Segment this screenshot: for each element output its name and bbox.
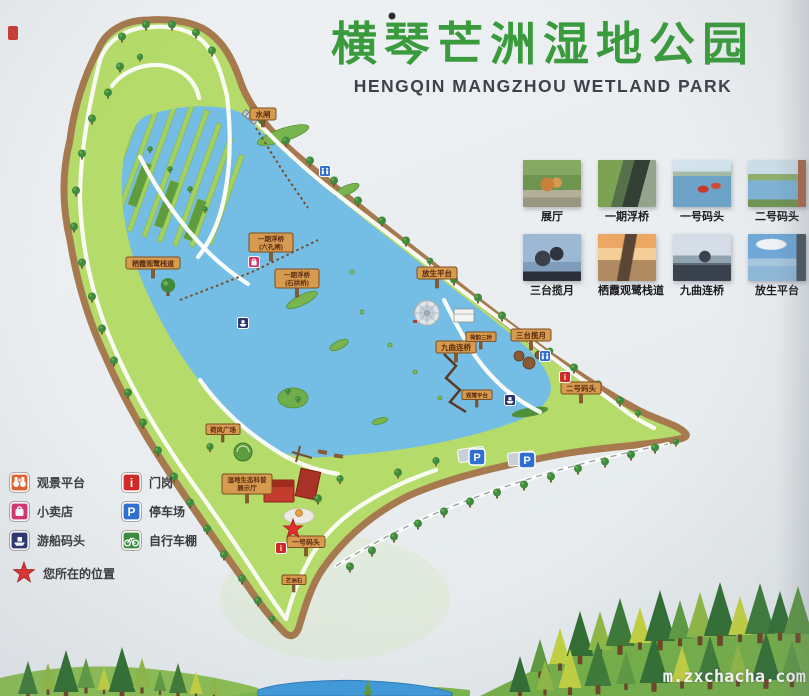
svg-text:荷韵三桥: 荷韵三桥 bbox=[469, 334, 493, 342]
svg-text:i: i bbox=[130, 476, 133, 490]
legend-label: 小卖店 bbox=[37, 503, 73, 520]
info-icon: i bbox=[122, 473, 141, 492]
svg-text:九曲连桥: 九曲连桥 bbox=[440, 342, 471, 352]
photo-panel: 展厅 一期浮桥 一号码头 二号码头 三台揽月 栖霞观鹭栈道 九曲连桥 bbox=[510, 160, 808, 308]
svg-text:P: P bbox=[523, 455, 530, 467]
legend-label: 门岗 bbox=[149, 474, 173, 491]
svg-text:荷风广场: 荷风广场 bbox=[209, 425, 237, 434]
photo-caption: 九曲连桥 bbox=[673, 285, 731, 297]
page-title: 横琴芒洲湿地公园 bbox=[312, 16, 774, 74]
shop-bag-icon bbox=[10, 502, 29, 521]
shop-icon bbox=[249, 257, 260, 268]
binoculars-icon bbox=[10, 473, 29, 492]
svg-text:芒洲石: 芒洲石 bbox=[286, 577, 303, 585]
photo-thumbnail bbox=[673, 234, 731, 281]
photo-thumbnail bbox=[523, 160, 581, 207]
svg-text:水闸: 水闸 bbox=[256, 109, 271, 119]
watermark: m.zxchacha.com bbox=[663, 667, 806, 687]
restroom-icon bbox=[320, 166, 331, 177]
legend-boat-pier: 游船码头 bbox=[10, 526, 122, 555]
park-map: 水闸 栖霞观鹭栈道 一期浮桥(六孔闸) 一期浮桥(石拱桥) 放生平台 九曲连桥 … bbox=[0, 0, 809, 696]
parking-icon: P bbox=[122, 502, 141, 521]
legend-label: 自行车棚 bbox=[149, 532, 197, 549]
bicycle-icon bbox=[122, 531, 141, 550]
parking-icon: P bbox=[519, 452, 535, 468]
svg-text:观鹭平台: 观鹭平台 bbox=[466, 392, 489, 400]
map-legend: 观景平台 小卖店 游船码头 i 门岗 P 停车场 bbox=[10, 468, 246, 585]
photo-exhibition-hall: 展厅 bbox=[523, 160, 581, 223]
svg-text:一号码头: 一号码头 bbox=[292, 538, 320, 547]
svg-text:i: i bbox=[280, 544, 282, 553]
pond bbox=[258, 680, 452, 696]
photo-caption: 一号码头 bbox=[673, 211, 731, 223]
gate-info-icon: i bbox=[276, 543, 287, 554]
restroom-icon bbox=[540, 351, 551, 362]
white-building bbox=[454, 309, 474, 322]
boat-pier-icon bbox=[238, 318, 249, 329]
photo-jiuqu-bridge: 九曲连桥 bbox=[673, 234, 731, 297]
photo-caption: 二号码头 bbox=[748, 211, 806, 223]
svg-text:(石拱桥): (石拱桥) bbox=[285, 278, 309, 287]
svg-text:P: P bbox=[473, 452, 480, 464]
lawn-circle bbox=[234, 443, 252, 461]
photo-phase1-bridge: 一期浮桥 bbox=[598, 160, 656, 223]
photo-row: 展厅 一期浮桥 一号码头 二号码头 bbox=[510, 160, 808, 223]
svg-text:栖霞观鹭栈道: 栖霞观鹭栈道 bbox=[132, 259, 174, 268]
legend-viewing-platform: 观景平台 bbox=[10, 468, 122, 497]
photo-pier-1: 一号码头 bbox=[673, 160, 731, 223]
photo-thumbnail bbox=[523, 234, 581, 281]
legend-bicycle-shed: 自行车棚 bbox=[122, 526, 240, 555]
star-icon bbox=[12, 561, 36, 585]
svg-text:i: i bbox=[564, 373, 566, 382]
photo-thumbnail bbox=[748, 160, 806, 207]
legend-gate: i 门岗 bbox=[122, 468, 240, 497]
svg-text:一期浮桥: 一期浮桥 bbox=[258, 234, 285, 243]
photo-qixia-boardwalk: 栖霞观鹭栈道 bbox=[598, 234, 656, 297]
photo-santai: 三台揽月 bbox=[523, 234, 581, 297]
red-corner-mark bbox=[8, 26, 18, 40]
legend-you-are-here: 您所在的位置 bbox=[12, 561, 246, 585]
legend-parking: P 停车场 bbox=[122, 497, 240, 526]
photo-thumbnail bbox=[673, 160, 731, 207]
svg-text:(六孔闸): (六孔闸) bbox=[259, 242, 283, 251]
you-are-here-label: 您所在的位置 bbox=[43, 565, 115, 582]
photo-caption: 栖霞观鹭栈道 bbox=[598, 285, 656, 297]
photo-fangsheng-platform: 放生平台 bbox=[748, 234, 806, 297]
boat-icon bbox=[10, 531, 29, 550]
page-subtitle: HENGQIN MANGZHOU WETLAND PARK bbox=[312, 76, 774, 97]
boat-pier-icon bbox=[505, 395, 516, 406]
legend-label: 游船码头 bbox=[37, 532, 85, 549]
photo-row: 三台揽月 栖霞观鹭栈道 九曲连桥 放生平台 bbox=[510, 234, 808, 297]
gate-info-icon: i bbox=[560, 372, 571, 383]
svg-text:二号码头: 二号码头 bbox=[566, 383, 596, 393]
photo-caption: 展厅 bbox=[523, 211, 581, 223]
photo-thumbnail bbox=[748, 234, 806, 281]
legend-label: 观景平台 bbox=[37, 474, 85, 491]
header: 横琴芒洲湿地公园 HENGQIN MANGZHOU WETLAND PARK bbox=[312, 16, 774, 97]
parking-icon: P bbox=[469, 449, 485, 465]
svg-text:放生平台: 放生平台 bbox=[421, 268, 452, 278]
photo-caption: 一期浮桥 bbox=[598, 211, 656, 223]
svg-text:一期浮桥: 一期浮桥 bbox=[284, 270, 311, 279]
photo-pier-2: 二号码头 bbox=[748, 160, 806, 223]
photo-thumbnail bbox=[598, 160, 656, 207]
photo-caption: 三台揽月 bbox=[523, 285, 581, 297]
svg-text:三台揽月: 三台揽月 bbox=[516, 330, 546, 340]
photo-thumbnail bbox=[598, 234, 656, 281]
photo-caption: 放生平台 bbox=[748, 285, 806, 297]
legend-shop: 小卖店 bbox=[10, 497, 122, 526]
legend-label: 停车场 bbox=[149, 503, 185, 520]
svg-text:P: P bbox=[127, 505, 135, 519]
